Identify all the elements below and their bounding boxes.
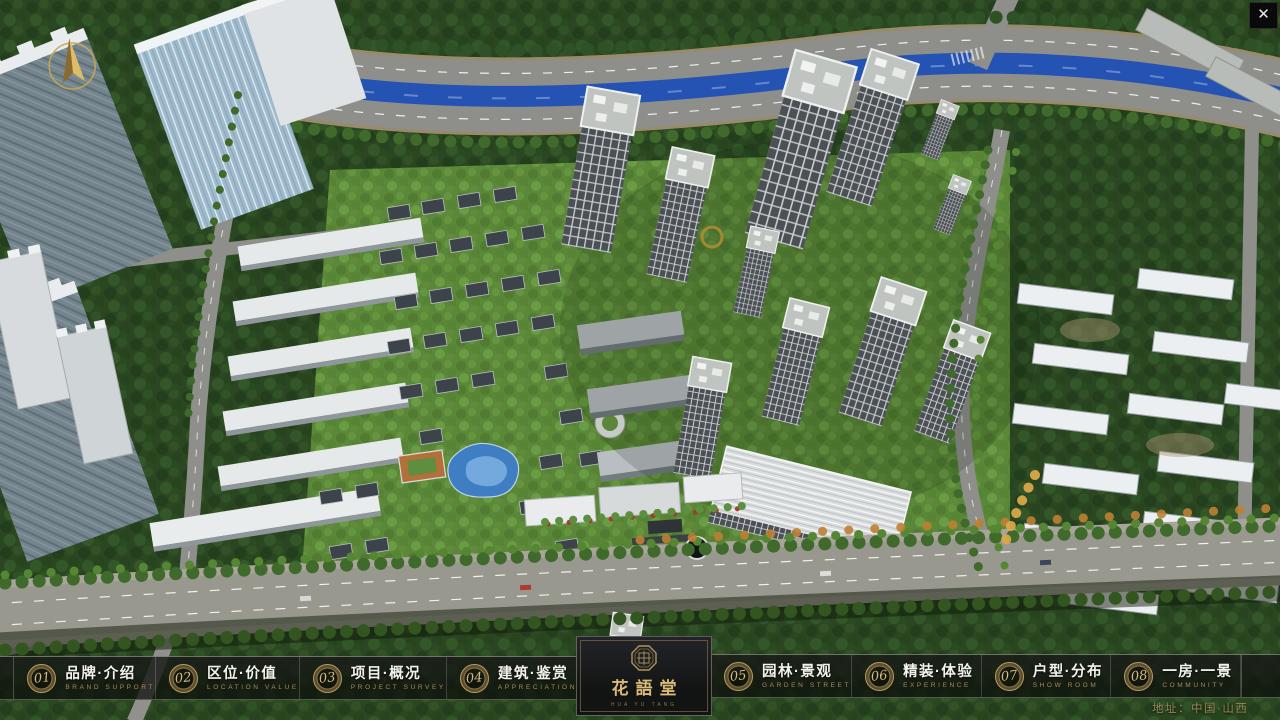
nav-item-brand-intro[interactable]: 01 品牌·介绍 BRAND SUPPORT — [14, 657, 156, 699]
nav-title: 区位·价值 — [207, 666, 299, 682]
navbar-spacer — [0, 657, 14, 699]
nav-number-badge: 02 — [169, 664, 198, 693]
compass-icon — [42, 30, 102, 96]
nav-item-unit-distribution[interactable]: 07 户型·分布 SHOW ROOM — [982, 655, 1112, 697]
bottom-navbar-left: 01 品牌·介绍 BRAND SUPPORT 02 区位·价值 LOCATION… — [0, 656, 578, 700]
sales-presentation-app: ✕ 01 品牌·介绍 BRAND SUPPORT 02 区位·价值 LOCATI… — [0, 0, 1280, 720]
navbar-spacer — [1241, 655, 1280, 697]
nav-title: 园林·景观 — [762, 664, 851, 680]
nav-title: 项目·概况 — [351, 666, 446, 682]
nav-number-badge: 03 — [313, 664, 342, 693]
nav-title: 品牌·介绍 — [65, 666, 155, 682]
nav-number-badge: 01 — [27, 664, 56, 693]
nav-subtitle: GARDEN STREET — [762, 682, 851, 689]
nav-item-location-value[interactable]: 02 区位·价值 LOCATION VALUE — [156, 657, 300, 699]
nav-title: 一房·一景 — [1162, 664, 1232, 680]
nav-subtitle: LOCATION VALUE — [207, 684, 299, 691]
nav-item-room-view[interactable]: 08 一房·一景 COMMUNITY — [1111, 655, 1241, 697]
project-logo-panel[interactable]: 花語堂 HUA YU TANG — [576, 636, 712, 716]
nav-subtitle: COMMUNITY — [1162, 682, 1232, 689]
nav-number-badge: 06 — [865, 662, 894, 691]
project-logo-inner: 花語堂 HUA YU TANG — [580, 640, 708, 712]
nav-subtitle: SHOW ROOM — [1033, 682, 1103, 689]
project-logo-name: 花語堂 — [605, 674, 684, 699]
close-button[interactable]: ✕ — [1249, 2, 1278, 29]
bottom-navbar-right: 05 园林·景观 GARDEN STREET 06 精装·体验 EXPERIEN… — [710, 654, 1280, 698]
aerial-masterplan-render — [0, 0, 1280, 720]
nav-item-garden-landscape[interactable]: 05 园林·景观 GARDEN STREET — [710, 655, 852, 697]
nav-title: 户型·分布 — [1033, 664, 1103, 680]
nav-subtitle: EXPERIENCE — [903, 682, 973, 689]
nav-subtitle: BRAND SUPPORT — [65, 684, 155, 691]
nav-number-badge: 05 — [724, 662, 753, 691]
nav-title: 建筑·鉴赏 — [498, 666, 577, 682]
nav-subtitle: PROJECT SURVEY — [351, 684, 446, 691]
nav-number-badge: 07 — [995, 662, 1024, 691]
nav-title: 精装·体验 — [903, 664, 973, 680]
nav-number-badge: 08 — [1124, 662, 1153, 691]
nav-item-interior-experience[interactable]: 06 精装·体验 EXPERIENCE — [852, 655, 982, 697]
project-address-label: 地址：中国·山西 — [1152, 700, 1248, 716]
masterplan-viewport[interactable] — [0, 0, 1280, 720]
project-logo-tagline: HUA YU TANG — [611, 702, 677, 708]
nav-subtitle: APPRECIATION — [498, 684, 577, 691]
nav-item-project-survey[interactable]: 03 项目·概况 PROJECT SURVEY — [300, 657, 447, 699]
nav-number-badge: 04 — [460, 664, 489, 693]
seal-emblem-icon — [631, 645, 657, 671]
nav-item-architecture[interactable]: 04 建筑·鉴赏 APPRECIATION — [447, 657, 578, 699]
